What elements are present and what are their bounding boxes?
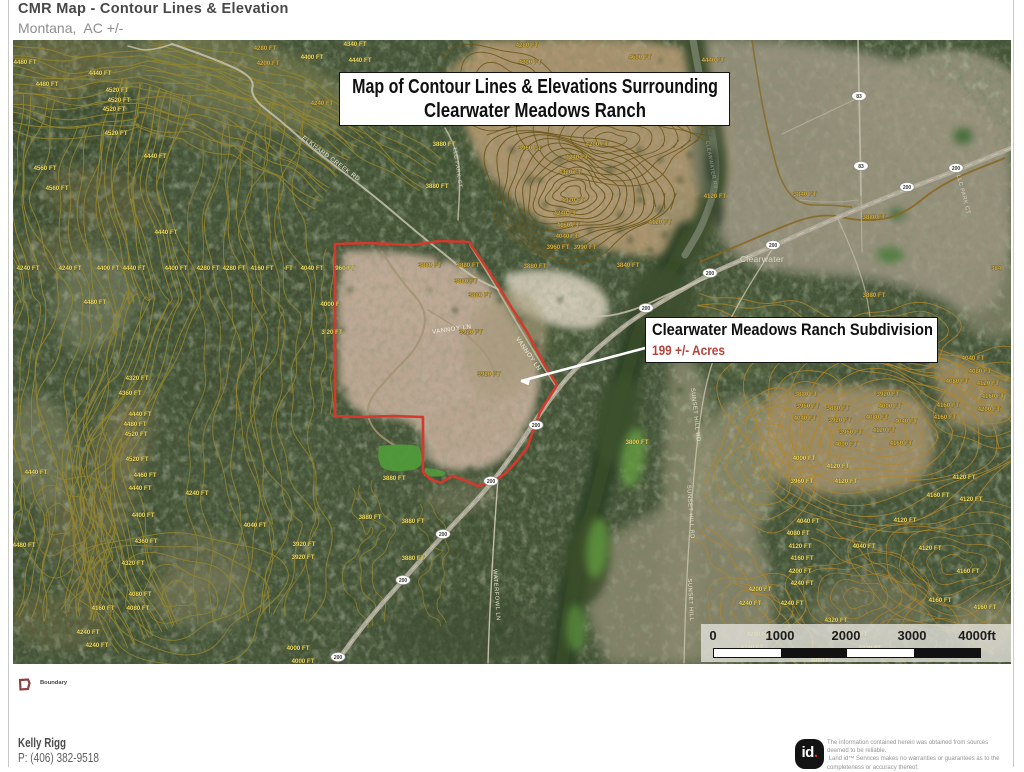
svg-text:4160 FT: 4160 FT bbox=[926, 492, 949, 499]
svg-text:4200 FT: 4200 FT bbox=[518, 59, 541, 66]
svg-text:4200 FT: 4200 FT bbox=[585, 141, 608, 148]
svg-text:4440 FT: 4440 FT bbox=[701, 57, 724, 64]
svg-text:3880 FT: 3880 FT bbox=[456, 262, 479, 269]
svg-text:3960 FT: 3960 FT bbox=[546, 244, 569, 251]
svg-text:3960 FT: 3960 FT bbox=[518, 145, 541, 152]
svg-text:4240 FT: 4240 FT bbox=[76, 629, 99, 636]
svg-text:4520 FT: 4520 FT bbox=[125, 456, 148, 463]
svg-text:4240 FT: 4240 FT bbox=[58, 265, 81, 272]
svg-text:3880 FT: 3880 FT bbox=[523, 263, 546, 270]
svg-text:4520 FT: 4520 FT bbox=[102, 106, 125, 113]
svg-text:200: 200 bbox=[769, 243, 778, 249]
svg-text:4200 FT: 4200 FT bbox=[256, 60, 279, 67]
svg-text:4080 FT: 4080 FT bbox=[865, 414, 888, 421]
svg-text:4440 FT: 4440 FT bbox=[128, 485, 151, 492]
svg-text:4040 FT: 4040 FT bbox=[852, 543, 875, 550]
svg-text:3880 FT: 3880 FT bbox=[418, 262, 441, 269]
svg-text:4560 FT: 4560 FT bbox=[45, 185, 68, 192]
svg-text:4240 FT: 4240 FT bbox=[565, 154, 588, 161]
svg-text:4160 FT: 4160 FT bbox=[973, 604, 996, 611]
svg-text:4240 FT: 4240 FT bbox=[738, 600, 761, 607]
svg-text:4160 FT: 4160 FT bbox=[928, 597, 951, 604]
svg-text:4120 FT: 4120 FT bbox=[826, 463, 849, 470]
svg-text:960 FT: 960 FT bbox=[335, 265, 355, 272]
svg-text:4320 FT: 4320 FT bbox=[561, 197, 584, 204]
svg-text:4000 FT: 4000 FT bbox=[834, 441, 857, 448]
svg-text:4240 FT: 4240 FT bbox=[85, 642, 108, 649]
svg-text:3880 FT: 3880 FT bbox=[862, 292, 885, 299]
svg-text:4480 FT: 4480 FT bbox=[83, 299, 106, 306]
svg-text:4600 FT: 4600 FT bbox=[628, 54, 651, 61]
svg-text:4440 FT: 4440 FT bbox=[122, 265, 145, 272]
svg-text:4440 FT: 4440 FT bbox=[128, 411, 151, 418]
svg-text:3990 FT: 3990 FT bbox=[573, 244, 596, 251]
svg-text:4120 FT: 4120 FT bbox=[959, 496, 982, 503]
svg-text:4520 FT: 4520 FT bbox=[105, 87, 128, 94]
svg-text:4320 FT: 4320 FT bbox=[558, 169, 581, 176]
svg-text:4200 FT: 4200 FT bbox=[788, 568, 811, 575]
svg-text:4160 FT: 4160 FT bbox=[91, 605, 114, 612]
svg-text:4440 FT: 4440 FT bbox=[24, 469, 47, 476]
svg-text:4160 FT: 4160 FT bbox=[556, 222, 579, 229]
svg-text:200: 200 bbox=[439, 532, 448, 538]
svg-text:3920 FT: 3920 FT bbox=[477, 371, 500, 378]
svg-text:3920 FT: 3920 FT bbox=[291, 554, 314, 561]
svg-text:4040 FT: 4040 FT bbox=[793, 415, 816, 422]
svg-text:384: 384 bbox=[991, 265, 1002, 272]
svg-text:3880 FT: 3880 FT bbox=[826, 405, 849, 412]
svg-text:200: 200 bbox=[642, 306, 651, 312]
svg-text:4040 FT: 4040 FT bbox=[300, 265, 323, 272]
svg-text:4360 FT: 4360 FT bbox=[134, 538, 157, 545]
svg-text:4120 FT: 4120 FT bbox=[788, 543, 811, 550]
svg-text:3960 FT: 3960 FT bbox=[839, 429, 862, 436]
svg-text:4240 FT: 4240 FT bbox=[16, 265, 39, 272]
svg-text:4440 FT: 4440 FT bbox=[143, 153, 166, 160]
svg-text:4160 FT: 4160 FT bbox=[981, 393, 1004, 400]
svg-text:4240 FT: 4240 FT bbox=[310, 100, 333, 107]
svg-text:4080 FT: 4080 FT bbox=[786, 530, 809, 537]
svg-text:4160 FT: 4160 FT bbox=[790, 555, 813, 562]
svg-text:4240 FT: 4240 FT bbox=[780, 600, 803, 607]
svg-text:3920 FT: 3920 FT bbox=[292, 541, 315, 548]
svg-text:4120 FT: 4120 FT bbox=[703, 193, 726, 200]
svg-text:4040 FT: 4040 FT bbox=[894, 418, 917, 425]
svg-text:4120 FT: 4120 FT bbox=[648, 219, 671, 226]
svg-text:3 20 FT: 3 20 FT bbox=[321, 329, 343, 336]
svg-text:3960 FT: 3960 FT bbox=[790, 478, 813, 485]
svg-text:200: 200 bbox=[487, 479, 496, 485]
svg-text:3880 FT: 3880 FT bbox=[401, 518, 424, 525]
svg-text:4480 FT: 4480 FT bbox=[123, 421, 146, 428]
svg-text:3920 FT: 3920 FT bbox=[876, 391, 899, 398]
svg-text:200: 200 bbox=[399, 578, 408, 584]
svg-text:4160 FT: 4160 FT bbox=[936, 402, 959, 409]
svg-text:4400 FT: 4400 FT bbox=[131, 512, 154, 519]
svg-text:4160 FT: 4160 FT bbox=[889, 440, 912, 447]
svg-text:4340 FT: 4340 FT bbox=[343, 41, 366, 48]
svg-text:4400 FT: 4400 FT bbox=[300, 54, 323, 61]
svg-text:4080 FT: 4080 FT bbox=[126, 605, 149, 612]
svg-text:3920 FT: 3920 FT bbox=[828, 417, 851, 424]
svg-text:3840 FT: 3840 FT bbox=[793, 191, 816, 198]
svg-text:4520 FT: 4520 FT bbox=[124, 431, 147, 438]
svg-text:3880 FT: 3880 FT bbox=[382, 475, 405, 482]
svg-text:4320 FT: 4320 FT bbox=[121, 560, 144, 567]
svg-text:-FT: -FT bbox=[283, 265, 293, 272]
svg-text:4200 FT: 4200 FT bbox=[977, 406, 1000, 413]
svg-text:3880 FT: 3880 FT bbox=[425, 183, 448, 190]
svg-text:4000 F: 4000 F bbox=[320, 301, 339, 308]
svg-text:3880 FT: 3880 FT bbox=[468, 292, 491, 299]
svg-text:200: 200 bbox=[532, 423, 541, 429]
svg-text:4000 FT: 4000 FT bbox=[792, 455, 815, 462]
svg-text:4240 FT: 4240 FT bbox=[185, 490, 208, 497]
svg-text:4480 FT: 4480 FT bbox=[35, 81, 58, 88]
svg-text:4000 FT: 4000 FT bbox=[291, 658, 314, 664]
svg-text:3800 FT: 3800 FT bbox=[625, 439, 648, 446]
svg-text:83: 83 bbox=[856, 94, 862, 100]
svg-text:4040 FT: 4040 FT bbox=[555, 233, 578, 240]
svg-text:200: 200 bbox=[706, 271, 715, 277]
svg-text:4400 FT: 4400 FT bbox=[96, 265, 119, 272]
svg-text:4360 FT: 4360 FT bbox=[118, 390, 141, 397]
svg-text:4040 FT: 4040 FT bbox=[796, 518, 819, 525]
svg-text:4400 FT: 4400 FT bbox=[164, 265, 187, 272]
svg-text:3960 FT: 3960 FT bbox=[796, 403, 819, 410]
svg-text:4120 FT: 4120 FT bbox=[952, 474, 975, 481]
svg-text:4440 FT: 4440 FT bbox=[348, 57, 371, 64]
svg-text:4200 FT: 4200 FT bbox=[748, 586, 771, 593]
svg-text:4080 FT: 4080 FT bbox=[968, 368, 991, 375]
svg-text:4120 FT: 4120 FT bbox=[893, 517, 916, 524]
svg-text:3880 FT: 3880 FT bbox=[862, 214, 885, 221]
svg-text:4440 FT: 4440 FT bbox=[154, 229, 177, 236]
svg-text:4080 FT: 4080 FT bbox=[128, 591, 151, 598]
svg-text:4120 FT: 4120 FT bbox=[872, 427, 895, 434]
svg-text:4280 FT: 4280 FT bbox=[253, 45, 276, 52]
svg-text:3880 FT: 3880 FT bbox=[454, 278, 477, 285]
svg-text:4460 FT: 4460 FT bbox=[133, 472, 156, 479]
svg-text:4040 FT: 4040 FT bbox=[961, 355, 984, 362]
svg-text:4120 FT: 4120 FT bbox=[976, 380, 999, 387]
svg-text:4280 FT: 4280 FT bbox=[515, 42, 538, 49]
svg-text:200: 200 bbox=[952, 166, 961, 172]
svg-text:4320 FT: 4320 FT bbox=[125, 375, 148, 382]
svg-text:4480 FT: 4480 FT bbox=[13, 542, 36, 549]
svg-text:200: 200 bbox=[334, 655, 343, 661]
svg-text:200: 200 bbox=[903, 185, 912, 191]
svg-text:4080 FT: 4080 FT bbox=[945, 378, 968, 385]
svg-text:4480 FT: 4480 FT bbox=[13, 59, 36, 66]
svg-text:4560 FT: 4560 FT bbox=[33, 165, 56, 172]
svg-text:3880 FT: 3880 FT bbox=[401, 555, 424, 562]
svg-text:4160 FT: 4160 FT bbox=[956, 568, 979, 575]
svg-text:4240 FT: 4240 FT bbox=[790, 580, 813, 587]
svg-text:3840 FT: 3840 FT bbox=[616, 262, 639, 269]
svg-text:4160 FT: 4160 FT bbox=[933, 414, 956, 421]
svg-text:Clearwater: Clearwater bbox=[740, 254, 784, 264]
svg-text:4520 FT: 4520 FT bbox=[107, 97, 130, 104]
svg-text:4160 FT: 4160 FT bbox=[250, 265, 273, 272]
svg-text:3880 FT: 3880 FT bbox=[358, 514, 381, 521]
svg-text:4000 FT: 4000 FT bbox=[878, 403, 901, 410]
svg-text:4240 FT: 4240 FT bbox=[553, 210, 576, 217]
svg-text:4040 FT: 4040 FT bbox=[243, 522, 266, 529]
svg-text:3880 FT: 3880 FT bbox=[794, 391, 817, 398]
svg-text:4120 FT: 4120 FT bbox=[918, 545, 941, 552]
svg-text:83: 83 bbox=[858, 164, 864, 170]
svg-text:4280 FT: 4280 FT bbox=[196, 265, 219, 272]
svg-text:4000 FT: 4000 FT bbox=[286, 645, 309, 652]
svg-text:4520 FT: 4520 FT bbox=[104, 130, 127, 137]
svg-text:4440 FT: 4440 FT bbox=[88, 70, 111, 77]
svg-text:4120 FT: 4120 FT bbox=[834, 478, 857, 485]
svg-text:4280 FT: 4280 FT bbox=[222, 265, 245, 272]
